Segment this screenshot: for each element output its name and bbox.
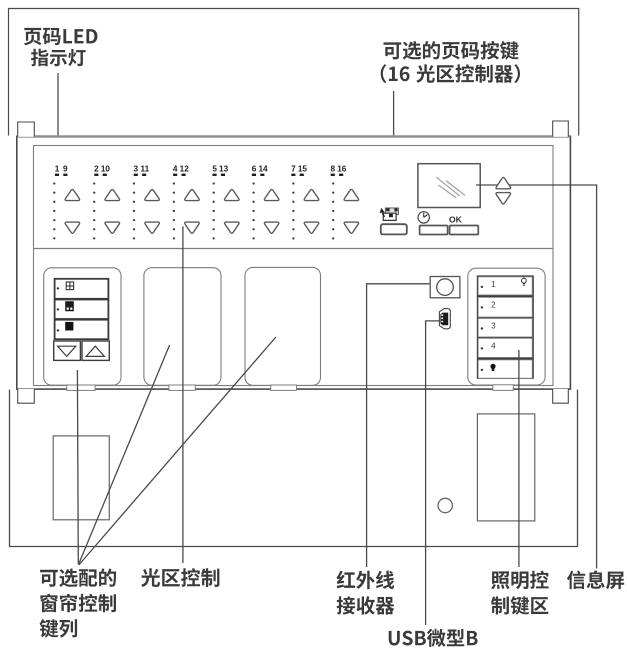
svg-text:13: 13 — [219, 164, 229, 173]
svg-text:15: 15 — [298, 164, 308, 173]
svg-text:14: 14 — [258, 164, 268, 173]
svg-text:8: 8 — [331, 164, 336, 173]
svg-text:10: 10 — [101, 164, 111, 173]
svg-text:7: 7 — [291, 164, 296, 173]
svg-text:5: 5 — [212, 164, 217, 173]
svg-text:16: 16 — [337, 164, 347, 173]
svg-text:4: 4 — [491, 341, 496, 350]
svg-text:11: 11 — [140, 164, 149, 173]
svg-text:2: 2 — [94, 164, 99, 173]
svg-text:3: 3 — [491, 321, 496, 330]
svg-text:OK: OK — [449, 214, 463, 224]
svg-text:2: 2 — [491, 300, 496, 309]
svg-text:1: 1 — [55, 164, 60, 173]
svg-text:3: 3 — [134, 164, 139, 173]
svg-text:4: 4 — [173, 164, 178, 173]
svg-text:6: 6 — [252, 164, 257, 173]
svg-text:9: 9 — [63, 164, 68, 173]
svg-text:1: 1 — [491, 280, 496, 289]
svg-text:12: 12 — [180, 164, 190, 173]
